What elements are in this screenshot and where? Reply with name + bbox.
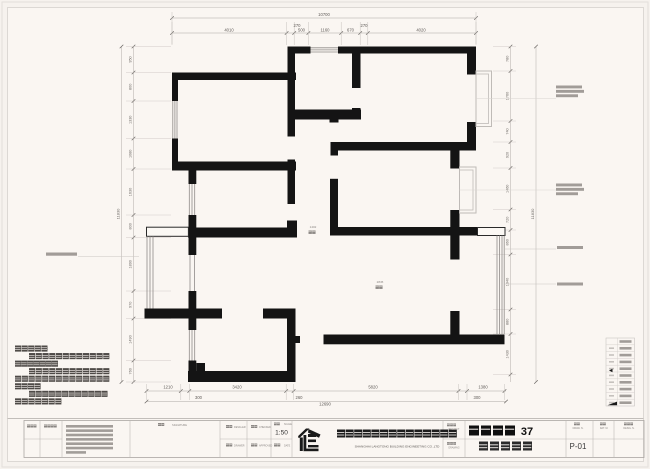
svg-text:1460: 1460 [506,185,510,193]
svg-text:CHECKED: CHECKED [259,426,271,429]
svg-text:APPROVED: APPROVED [259,445,273,448]
svg-text:1630: 1630 [129,188,133,196]
svg-text:950: 950 [129,56,133,62]
svg-text:1:50: 1:50 [275,430,288,437]
svg-text:300: 300 [474,395,482,400]
svg-text:1330: 1330 [129,116,133,124]
svg-text:1402: 1402 [310,225,317,229]
svg-text:1760: 1760 [506,92,510,100]
svg-text:780: 780 [506,56,510,62]
svg-text:1160: 1160 [320,28,330,33]
svg-text:270: 270 [294,23,302,28]
svg-text:SCALE: SCALE [284,423,292,426]
svg-text:4010: 4010 [224,28,234,33]
svg-text:11830: 11830 [116,208,121,220]
svg-text:DESIG. N.: DESIG. N. [623,427,634,430]
svg-text:920: 920 [506,152,510,158]
svg-text:2845: 2845 [377,280,384,284]
svg-text:11830: 11830 [530,208,535,220]
svg-text:DRAWER: DRAWER [234,445,245,448]
svg-text:1380: 1380 [478,385,488,390]
svg-text:3420: 3420 [232,385,242,390]
svg-text:DAT. M.: DAT. M. [600,427,609,430]
svg-text:DATE: DATE [284,445,291,448]
svg-text:800: 800 [129,223,133,229]
svg-text:1430: 1430 [506,350,510,358]
svg-text:720: 720 [506,217,510,223]
svg-text:760: 760 [129,368,133,374]
svg-text:1490: 1490 [129,335,133,343]
svg-text:1080: 1080 [129,150,133,158]
svg-text:1210: 1210 [163,385,173,390]
svg-text:880: 880 [506,319,510,325]
svg-text:500: 500 [298,28,306,33]
svg-text:10700: 10700 [318,12,330,17]
svg-text:1940: 1940 [506,278,510,286]
svg-text:DRAWING: DRAWING [448,447,459,450]
svg-text:4020: 4020 [416,28,426,33]
svg-text:DESIG-ER: DESIG-ER [234,426,246,429]
svg-text:670: 670 [347,28,355,33]
svg-text:37: 37 [521,426,533,438]
svg-text:PROJECT: PROJECT [449,429,460,431]
svg-text:12690: 12690 [319,402,331,407]
svg-text:260: 260 [296,395,304,400]
svg-text:270: 270 [361,23,369,28]
svg-text:SIGNATURE: SIGNATURE [172,423,187,427]
svg-text:1890: 1890 [129,260,133,268]
svg-text:5820: 5820 [368,385,378,390]
svg-text:740: 740 [506,128,510,134]
svg-text:800: 800 [129,84,133,90]
svg-text:P-01: P-01 [570,442,587,451]
svg-text:860: 860 [506,239,510,245]
svg-text:970: 970 [129,302,133,308]
svg-text:300: 300 [195,395,203,400]
svg-text:SHANGHAI LANGTONG BUILDING ENG: SHANGHAI LANGTONG BUILDING ENGINEETING C… [355,445,441,449]
svg-text:DRAW. N.: DRAW. N. [573,427,584,430]
